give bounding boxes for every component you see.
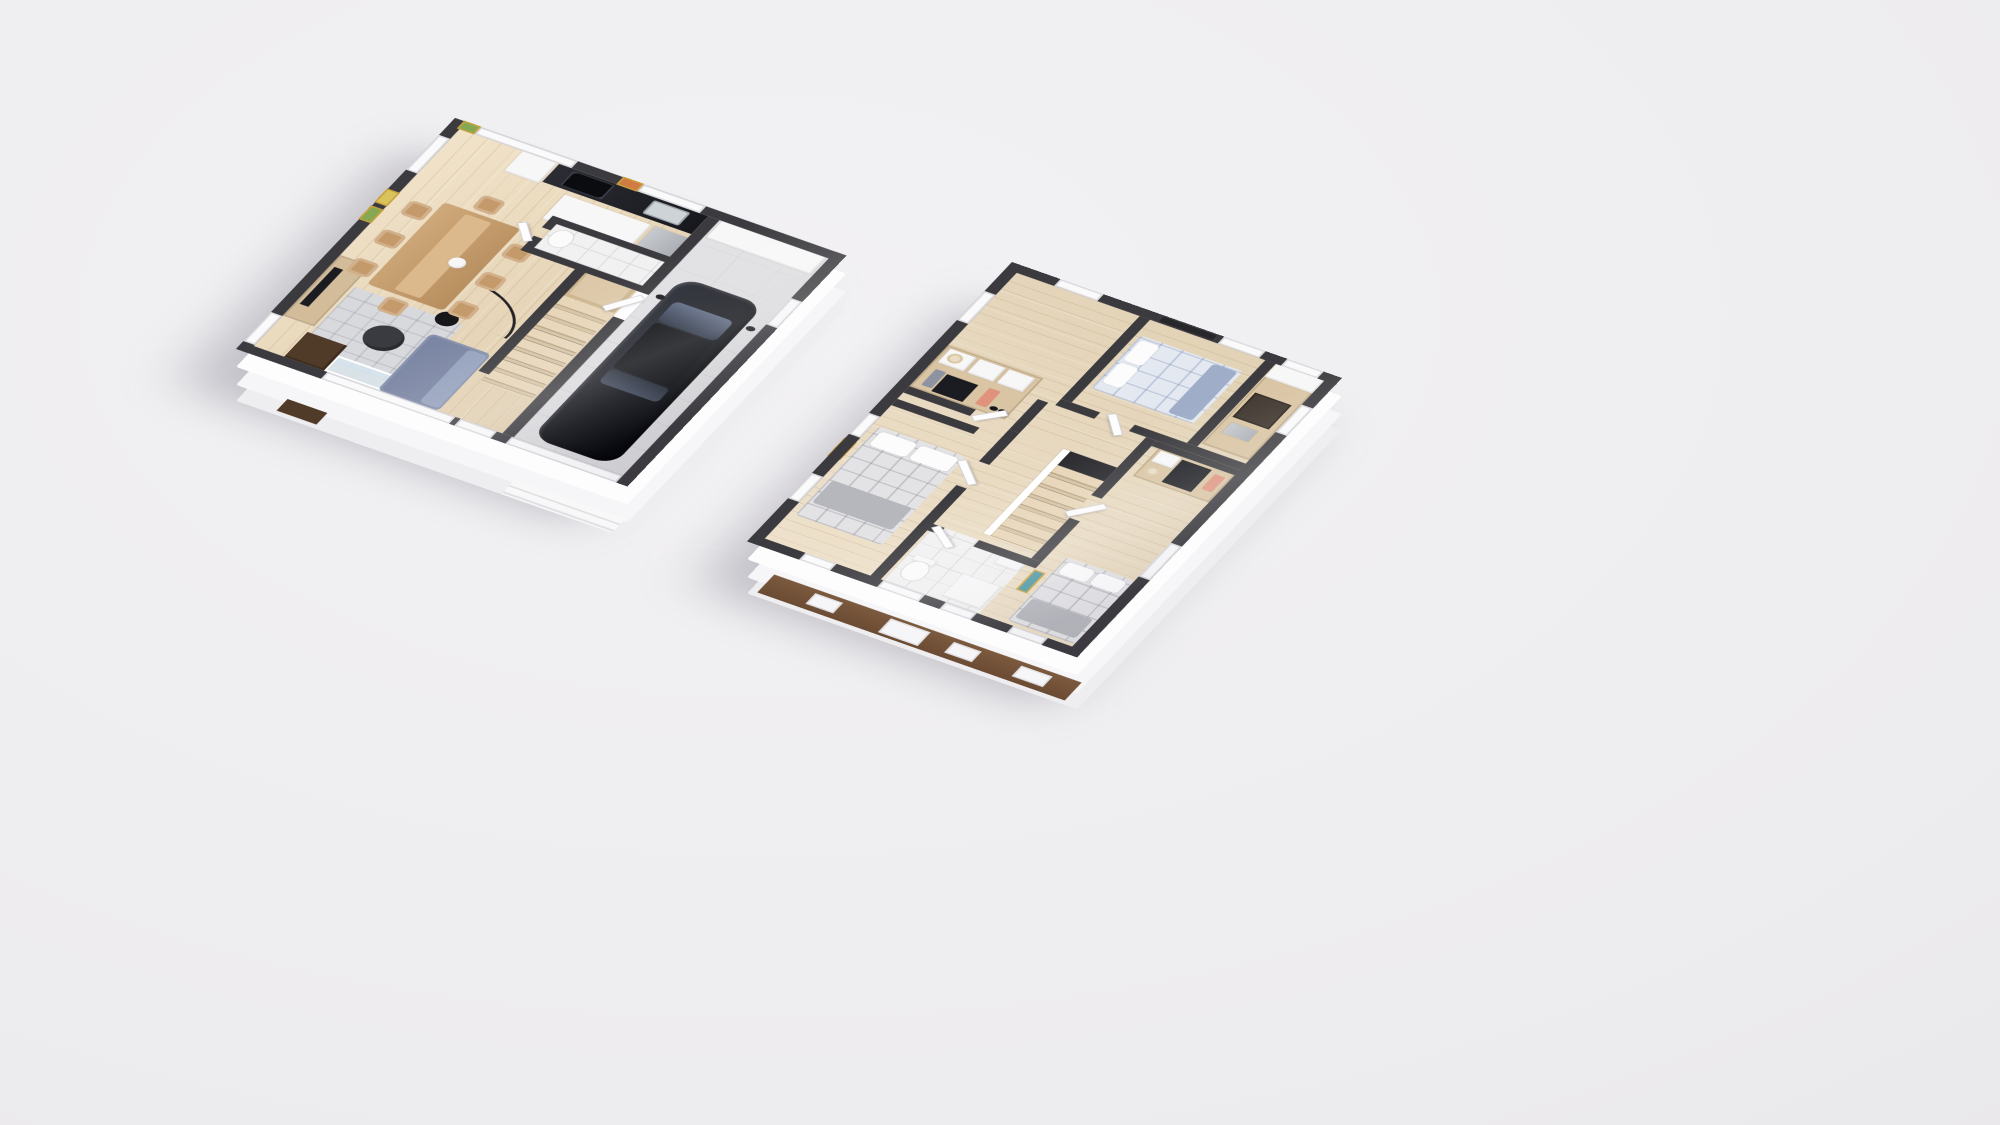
render-canvas [0,0,2000,1125]
